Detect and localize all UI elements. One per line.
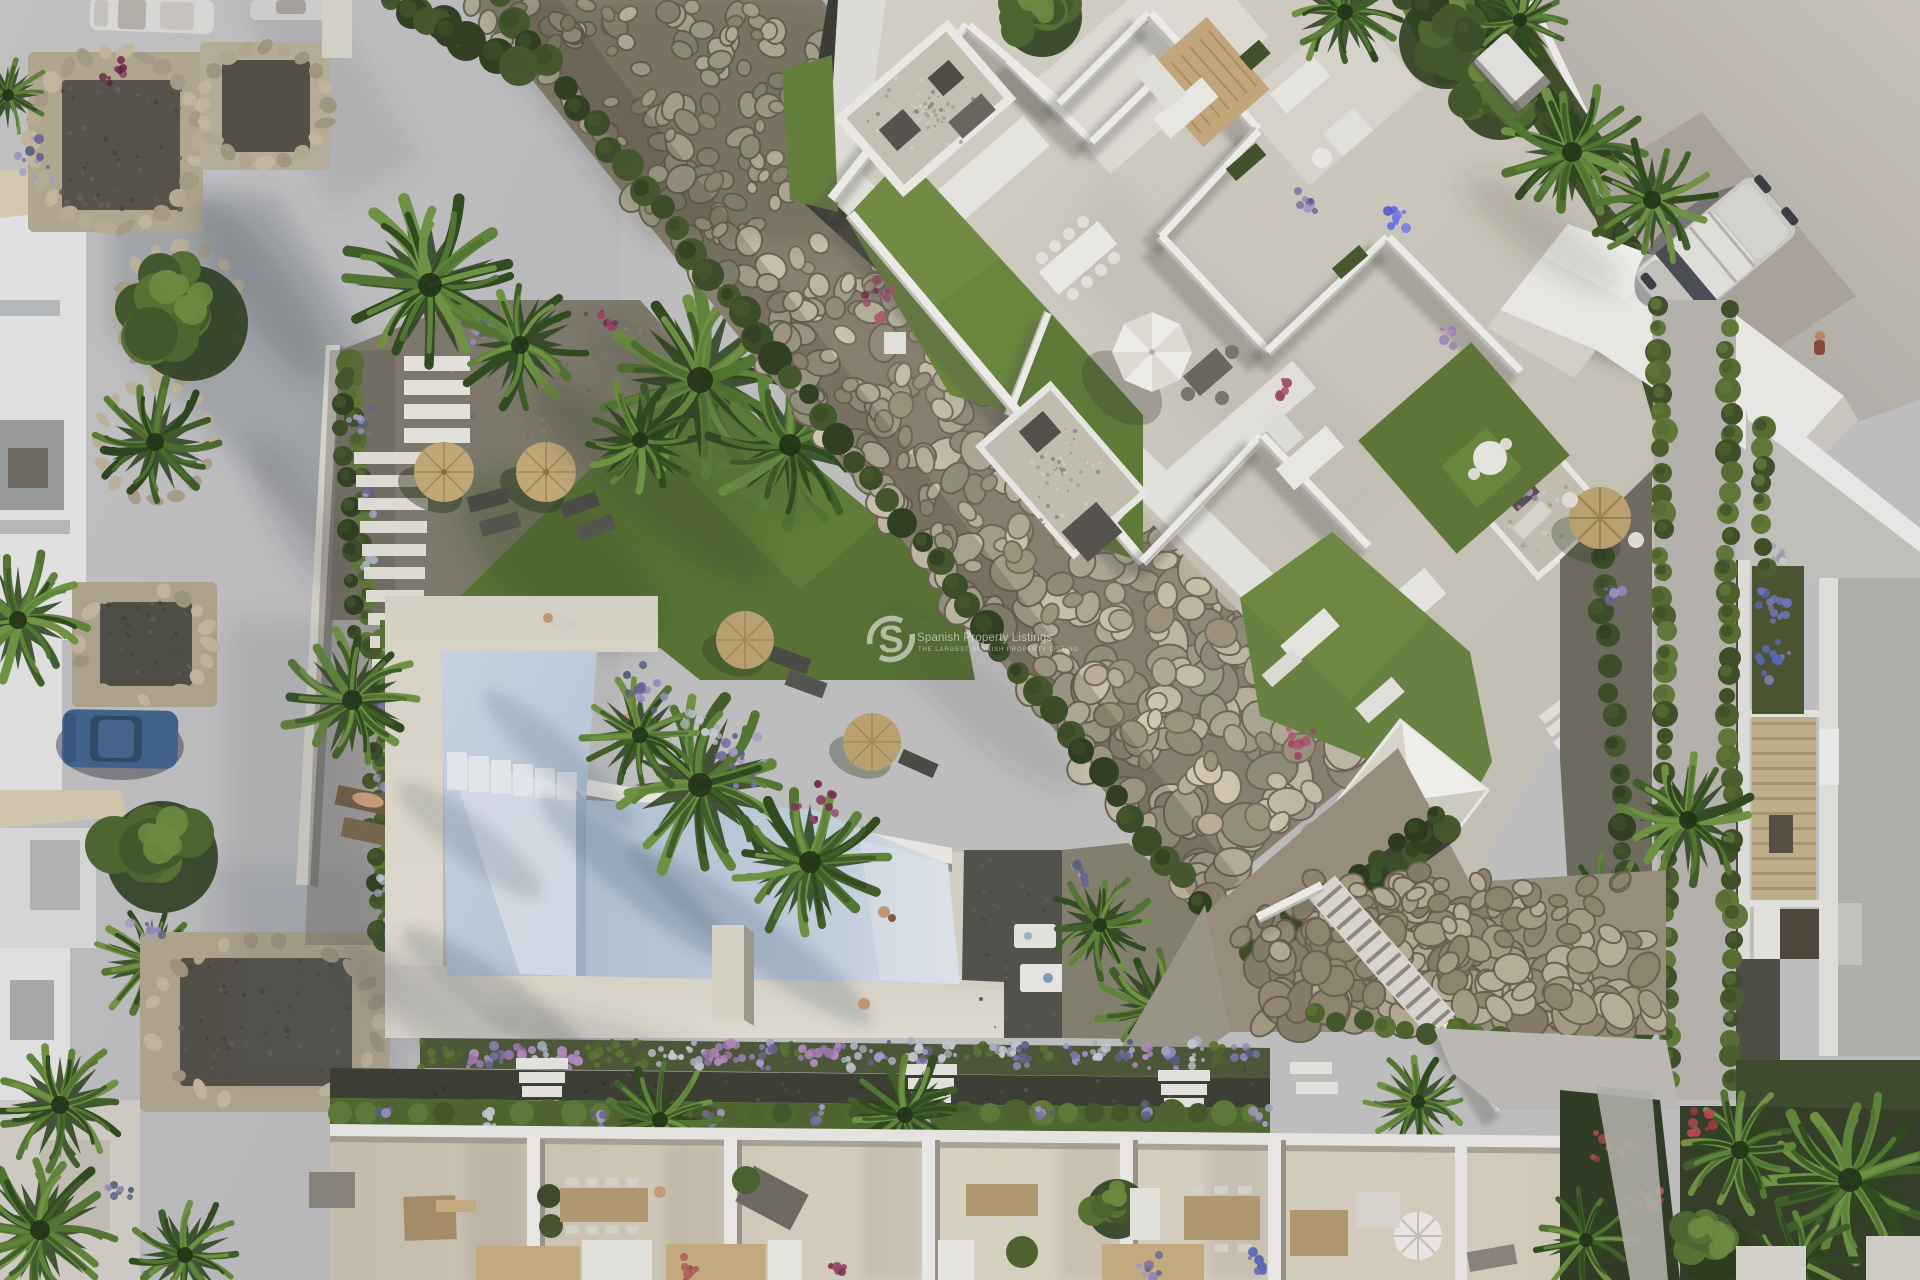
svg-text:S: S bbox=[878, 619, 903, 661]
svg-text:Spanish Property Listings: Spanish Property Listings bbox=[917, 632, 1052, 644]
svg-text:THE LARGEST SPANISH PROPERTY L: THE LARGEST SPANISH PROPERTY LISTING bbox=[918, 647, 1079, 653]
